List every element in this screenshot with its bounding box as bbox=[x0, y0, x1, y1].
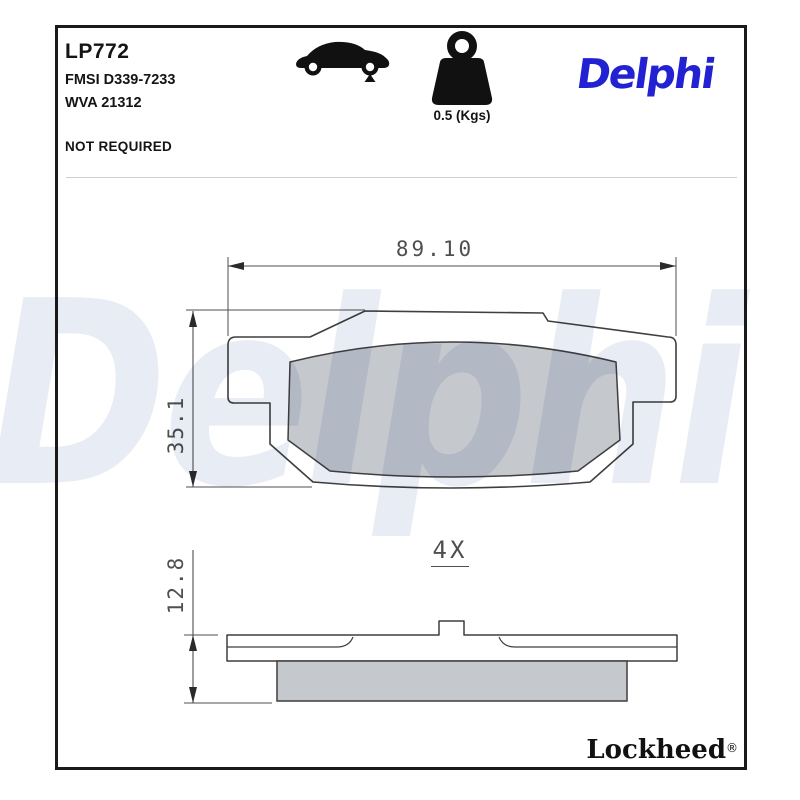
height-arrow-top bbox=[189, 311, 197, 327]
friction-material-front bbox=[288, 342, 620, 477]
axle-marker-icon bbox=[365, 74, 376, 82]
technical-drawing bbox=[0, 0, 800, 800]
thickness-arrow-top bbox=[189, 635, 197, 651]
height-arrow-bottom bbox=[189, 471, 197, 487]
backplate-side-outline bbox=[227, 621, 677, 661]
width-arrow-left bbox=[228, 262, 244, 270]
friction-material-side bbox=[277, 661, 627, 701]
datasheet-page: LP772 FMSI D339-7233 WVA 21312 NOT REQUI… bbox=[0, 0, 800, 800]
thickness-arrow-bottom bbox=[189, 687, 197, 703]
weight-icon bbox=[420, 28, 504, 112]
width-arrow-right bbox=[660, 262, 676, 270]
car-icon bbox=[293, 34, 393, 84]
